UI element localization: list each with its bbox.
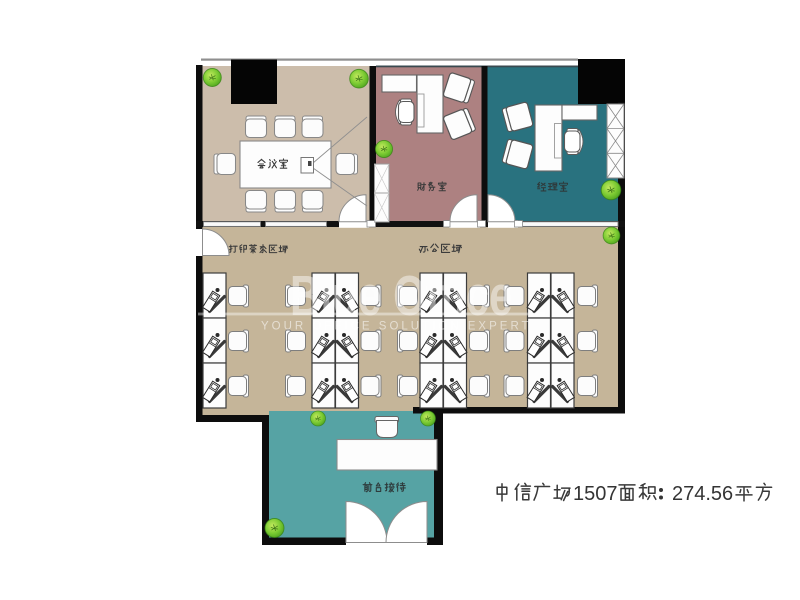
- svg-text:Blue Office: Blue Office: [290, 264, 513, 328]
- svg-text:274.56: 274.56: [672, 483, 733, 505]
- svg-text:1507: 1507: [573, 483, 618, 505]
- svg-text:YOUR OFFICE SOLUTION EXPERT: YOUR OFFICE SOLUTION EXPERT: [261, 321, 532, 333]
